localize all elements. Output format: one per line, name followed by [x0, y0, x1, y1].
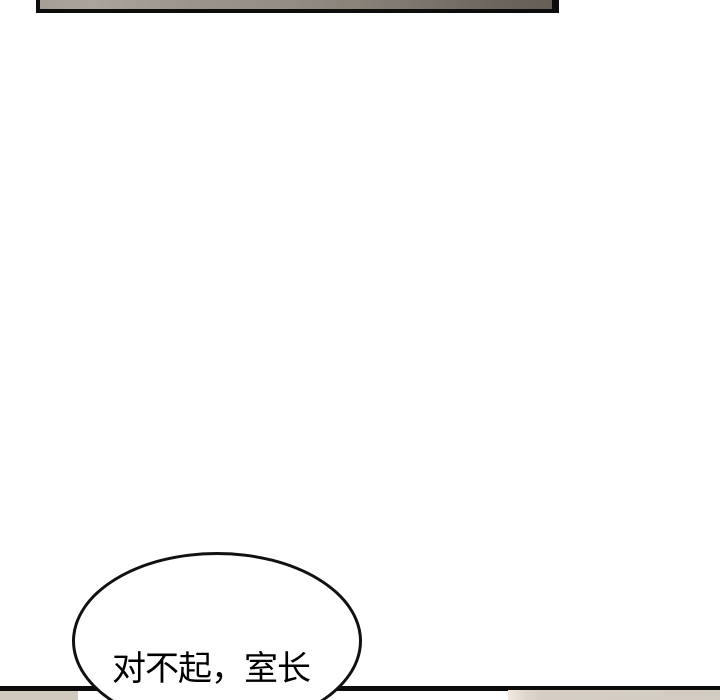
- comic-page: 对不起，室长: [0, 0, 720, 700]
- speech-bubble-text: 对不起，室长: [112, 651, 310, 688]
- next-panel-left-beige-block: [0, 691, 78, 700]
- previous-panel-bottom-edge: [36, 0, 559, 13]
- next-panel-right-beige-block: [508, 690, 720, 700]
